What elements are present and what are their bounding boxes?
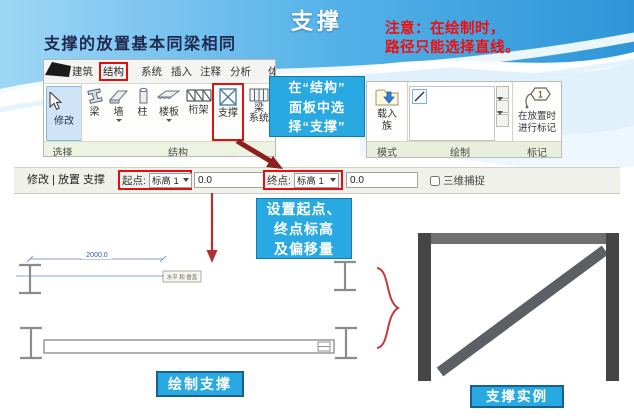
brace-example-drawing xyxy=(410,224,630,386)
frame-top-beam xyxy=(418,233,619,244)
options-bar: 修改 | 放置 支撑 起点: 标高 1 终点: 标高 1 三维捕捉 xyxy=(14,167,620,194)
dimension-value: 2000.0 xyxy=(86,252,108,259)
callout-line: 终点标高 xyxy=(257,219,351,239)
frame-left-column xyxy=(418,233,431,381)
draw-gallery-scrollbar xyxy=(496,86,509,139)
gallery-expand-button[interactable] xyxy=(496,114,509,127)
column-symbol xyxy=(19,265,41,293)
panel-label-strip: 模式 绘制 标记 xyxy=(367,141,561,157)
ribbon-tab-bar: 建筑 结构 系统 插入 注释 分析 体 xyxy=(44,60,276,84)
expand-arrow-icon xyxy=(497,111,503,132)
callout-line: 面板中选 xyxy=(270,98,364,118)
end-level-value: 标高 1 xyxy=(297,173,324,187)
frame-right-column xyxy=(606,233,619,381)
start-level-highlight-box: 起点: 标高 1 xyxy=(118,170,192,190)
snap-3d-label: 三维捕捉 xyxy=(443,173,485,188)
end-level-label: 终点: xyxy=(267,173,291,188)
callout-set-levels: 设置起点、 终点标高 及偏移量 xyxy=(256,198,352,259)
start-offset-input[interactable] xyxy=(194,172,264,188)
slide-subtitle: 支撑的放置基本同梁相同 xyxy=(44,30,237,54)
truss-tool[interactable]: 桁架 xyxy=(184,85,213,116)
brace-icon xyxy=(218,87,238,107)
floor-icon xyxy=(157,87,181,106)
tag-icon: 1 xyxy=(522,85,552,111)
svg-text:1: 1 xyxy=(538,90,543,100)
mode-panel-label: 模式 xyxy=(367,144,407,159)
line-tool-button[interactable] xyxy=(412,89,427,104)
snap-3d-checkbox[interactable] xyxy=(430,176,440,186)
app-logo-icon xyxy=(45,62,71,77)
ribbon-mode-draw-tag-panels: 载入 族 1 在放置时 进行标记 模式 绘制 标记 xyxy=(366,81,562,158)
column-symbol xyxy=(335,328,357,358)
dropdown-caret-icon xyxy=(330,178,336,182)
tab-structure[interactable]: 结构 xyxy=(99,62,128,81)
draw-gallery[interactable] xyxy=(409,86,495,141)
callout-select-brace: 在“结构” 面板中选 择“支撑” xyxy=(269,76,365,137)
modify-label: 修改 xyxy=(54,116,74,127)
column-label: 柱 xyxy=(132,107,153,118)
wall-label: 墙 xyxy=(107,107,130,118)
column-symbol xyxy=(334,262,356,290)
draw-brace-label: 绘制支撑 xyxy=(156,371,244,397)
ribbon-structure-panel: 建筑 结构 系统 插入 注释 分析 体 修改 梁 墙 xyxy=(43,59,276,157)
note-line-2: 路径只能选择直线。 xyxy=(385,39,520,58)
note-annotation: 注意：在绘制时， 路径只能选择直线。 xyxy=(385,20,520,58)
placed-beam-outline xyxy=(44,340,334,353)
brace-example-label: 支撑实例 xyxy=(470,385,564,408)
callout-line: 设置起点、 xyxy=(257,199,351,219)
modify-button[interactable]: 修改 xyxy=(46,86,82,141)
select-panel-label: 选择 xyxy=(44,144,81,157)
start-level-dropdown[interactable]: 标高 1 xyxy=(149,173,192,188)
tab-annotate[interactable]: 注释 xyxy=(200,64,221,79)
floor-label: 楼板 xyxy=(155,107,183,118)
panel-label-strip: 选择 结构 xyxy=(44,141,276,157)
beam-icon xyxy=(85,87,105,106)
frame-diagonal-brace xyxy=(440,250,605,372)
tab-insert[interactable]: 插入 xyxy=(171,64,192,79)
tag-on-placement-button[interactable]: 1 在放置时 进行标记 xyxy=(513,85,561,140)
tab-systems[interactable]: 系统 xyxy=(141,64,162,79)
truss-icon xyxy=(186,87,212,104)
beam-system-icon xyxy=(248,87,270,103)
end-level-highlight-box: 终点: 标高 1 xyxy=(263,170,343,190)
dropdown-caret-icon xyxy=(183,178,189,182)
brace-tool[interactable]: 支撑 xyxy=(214,85,242,119)
brace-label: 支撑 xyxy=(214,108,242,119)
options-bar-mode-text: 修改 | 放置 支撑 xyxy=(27,168,105,193)
tag-panel-label: 标记 xyxy=(513,144,561,159)
snap-3d-checkbox-group: 三维捕捉 xyxy=(430,173,485,188)
grouping-curly-brace xyxy=(377,268,398,348)
cursor-arrow-icon xyxy=(47,92,63,112)
tab-analyze[interactable]: 分析 xyxy=(230,64,251,79)
load-family-label-2: 族 xyxy=(382,121,392,132)
tag-label-1: 在放置时 xyxy=(518,111,556,122)
draw-panel-label: 绘制 xyxy=(408,144,512,159)
note-line-1: 注意：在绘制时， xyxy=(385,20,520,39)
dropdown-caret-icon xyxy=(166,119,172,122)
column-tool[interactable]: 柱 xyxy=(132,85,153,118)
load-family-folder-icon xyxy=(374,85,400,109)
load-family-button[interactable]: 载入 族 xyxy=(369,85,405,140)
dropdown-caret-icon xyxy=(116,119,122,122)
wall-tool[interactable]: 墙 xyxy=(107,85,130,122)
tag-label-2: 进行标记 xyxy=(518,123,556,134)
beam-tool[interactable]: 梁 xyxy=(83,85,106,118)
callout-line: 择“支撑” xyxy=(270,117,364,137)
callout-line: 在“结构” xyxy=(270,78,364,98)
snap-tooltip-text: 水平 和 垂直 xyxy=(167,273,198,281)
start-level-value: 标高 1 xyxy=(152,173,179,187)
column-icon xyxy=(136,87,150,106)
beam-label: 梁 xyxy=(83,107,106,118)
end-offset-input[interactable] xyxy=(346,172,418,188)
line-tool-icon xyxy=(413,90,426,103)
structure-panel-label: 结构 xyxy=(82,144,274,157)
panel-divider xyxy=(81,84,82,141)
start-level-label: 起点: xyxy=(122,173,146,188)
load-family-label-1: 载入 xyxy=(377,109,397,120)
tab-architecture[interactable]: 建筑 xyxy=(72,64,93,79)
floor-tool[interactable]: 楼板 xyxy=(155,85,183,122)
end-level-dropdown[interactable]: 标高 1 xyxy=(294,173,339,188)
column-symbol xyxy=(20,328,42,358)
ribbon-tool-row: 修改 梁 墙 柱 xyxy=(44,84,276,141)
truss-label: 桁架 xyxy=(184,105,213,116)
callout-line: 及偏移量 xyxy=(257,239,351,259)
wall-icon xyxy=(108,87,129,106)
